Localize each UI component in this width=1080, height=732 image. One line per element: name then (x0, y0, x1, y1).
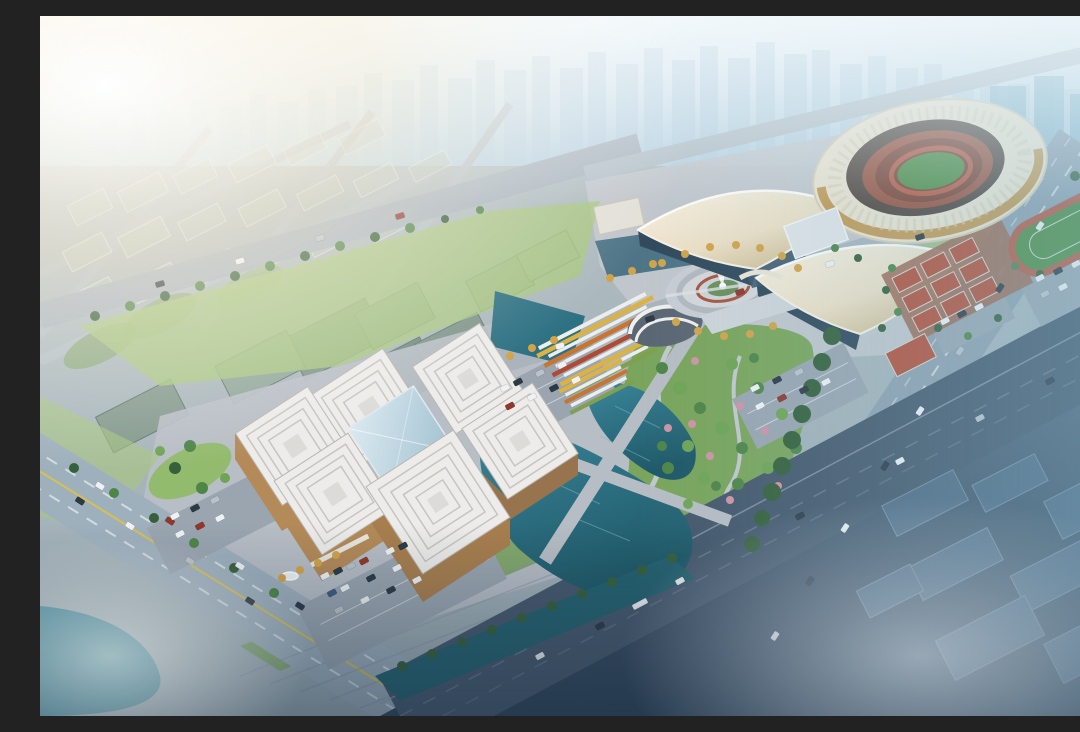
scene-canvas: Hazy high-rise residential skyline fadin… (40, 16, 1080, 716)
aerial-rendering: Hazy high-rise residential skyline fadin… (40, 16, 1080, 716)
